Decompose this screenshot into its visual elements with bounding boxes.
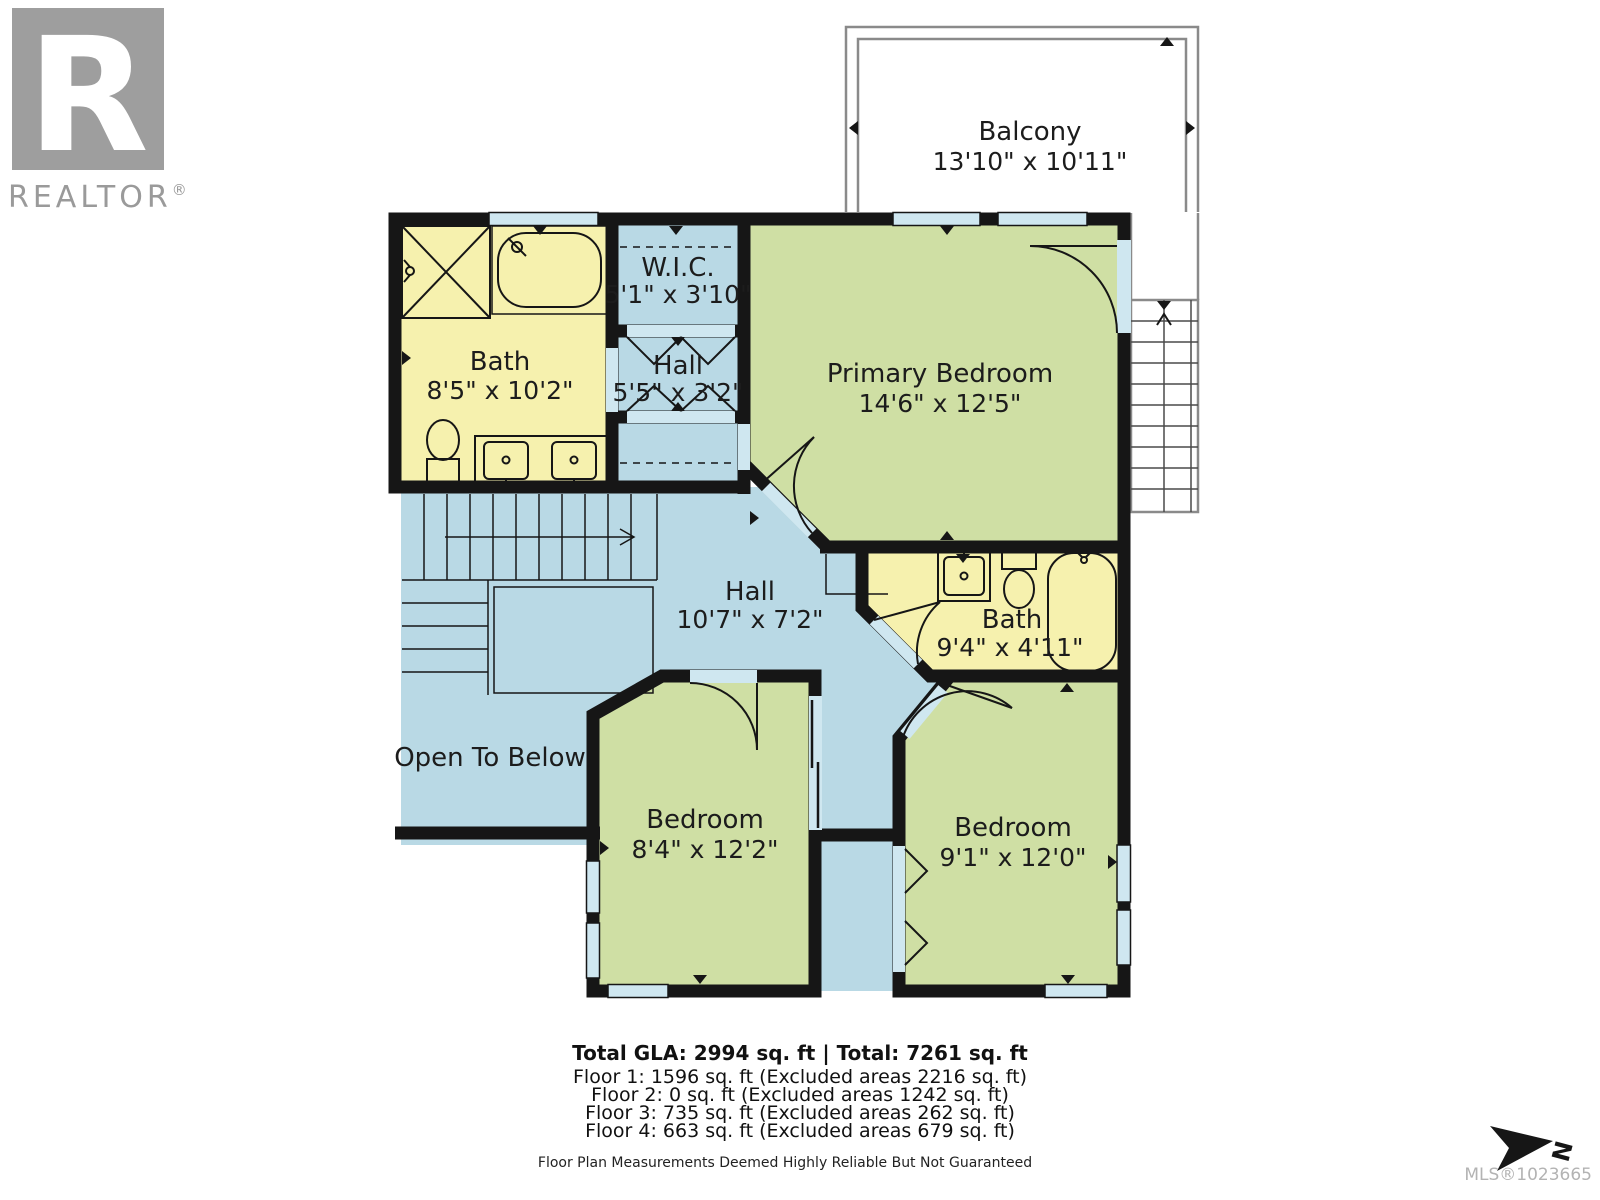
window [893, 213, 980, 226]
bedroom-left-name-label: Bedroom [646, 805, 764, 835]
window [608, 985, 668, 998]
disclaimer-label: Floor Plan Measurements Deemed Highly Re… [538, 1155, 1032, 1171]
window [1117, 845, 1131, 902]
total-area-label: Total GLA: 2994 sq. ft | Total: 7261 sq.… [572, 1041, 1028, 1065]
floor4-area-label: Floor 4: 663 sq. ft (Excluded areas 679 … [585, 1120, 1015, 1142]
balcony-name-label: Balcony [978, 117, 1081, 147]
mls-number-label: MLS®1023665 [1464, 1165, 1592, 1185]
bedroom-left-dims-label: 8'4" x 12'2" [632, 835, 779, 864]
logo-letter: R [27, 4, 149, 188]
window [998, 213, 1087, 226]
north-label: N [1545, 1138, 1577, 1165]
bath-upper-name-label: Bath [470, 347, 530, 377]
footer: Total GLA: 2994 sq. ft | Total: 7261 sq.… [538, 1041, 1032, 1171]
primary-bedroom-name-label: Primary Bedroom [827, 359, 1053, 389]
realtor-logo: R REALTOR® [8, 4, 191, 215]
window [489, 213, 598, 226]
primary-bedroom-dims-label: 14'6" x 12'5" [859, 389, 1022, 418]
bath-lower-dims-label: 9'4" x 4'11" [937, 633, 1084, 662]
exterior-stairs [1131, 300, 1198, 512]
floor-plan-svg: R REALTOR® [0, 0, 1600, 1200]
logo-wordmark: REALTOR® [8, 180, 191, 215]
bath-lower-name-label: Bath [982, 605, 1042, 635]
bedroom-right-dims-label: 9'1" x 12'0" [940, 843, 1087, 872]
hall-small-dims-label: 5'5" x 3'2" [612, 378, 743, 407]
wic-name-label: W.I.C. [641, 253, 714, 283]
open-to-below-label: Open To Below [394, 743, 586, 773]
hall-small-name-label: Hall [653, 351, 703, 381]
window [1045, 985, 1107, 998]
bath-upper-dims-label: 8'5" x 10'2" [427, 376, 574, 405]
floor-plan-page: R REALTOR® [0, 0, 1600, 1200]
wic-dims-label: 5'1" x 3'10" [605, 280, 752, 309]
window [1117, 910, 1131, 965]
hall-main-dims-label: 10'7" x 7'2" [677, 605, 824, 634]
window [587, 861, 600, 913]
balcony-dims-label: 13'10" x 10'11" [933, 147, 1128, 176]
hall-main-name-label: Hall [725, 577, 775, 607]
window [587, 923, 600, 978]
bedroom-right-name-label: Bedroom [954, 813, 1072, 843]
